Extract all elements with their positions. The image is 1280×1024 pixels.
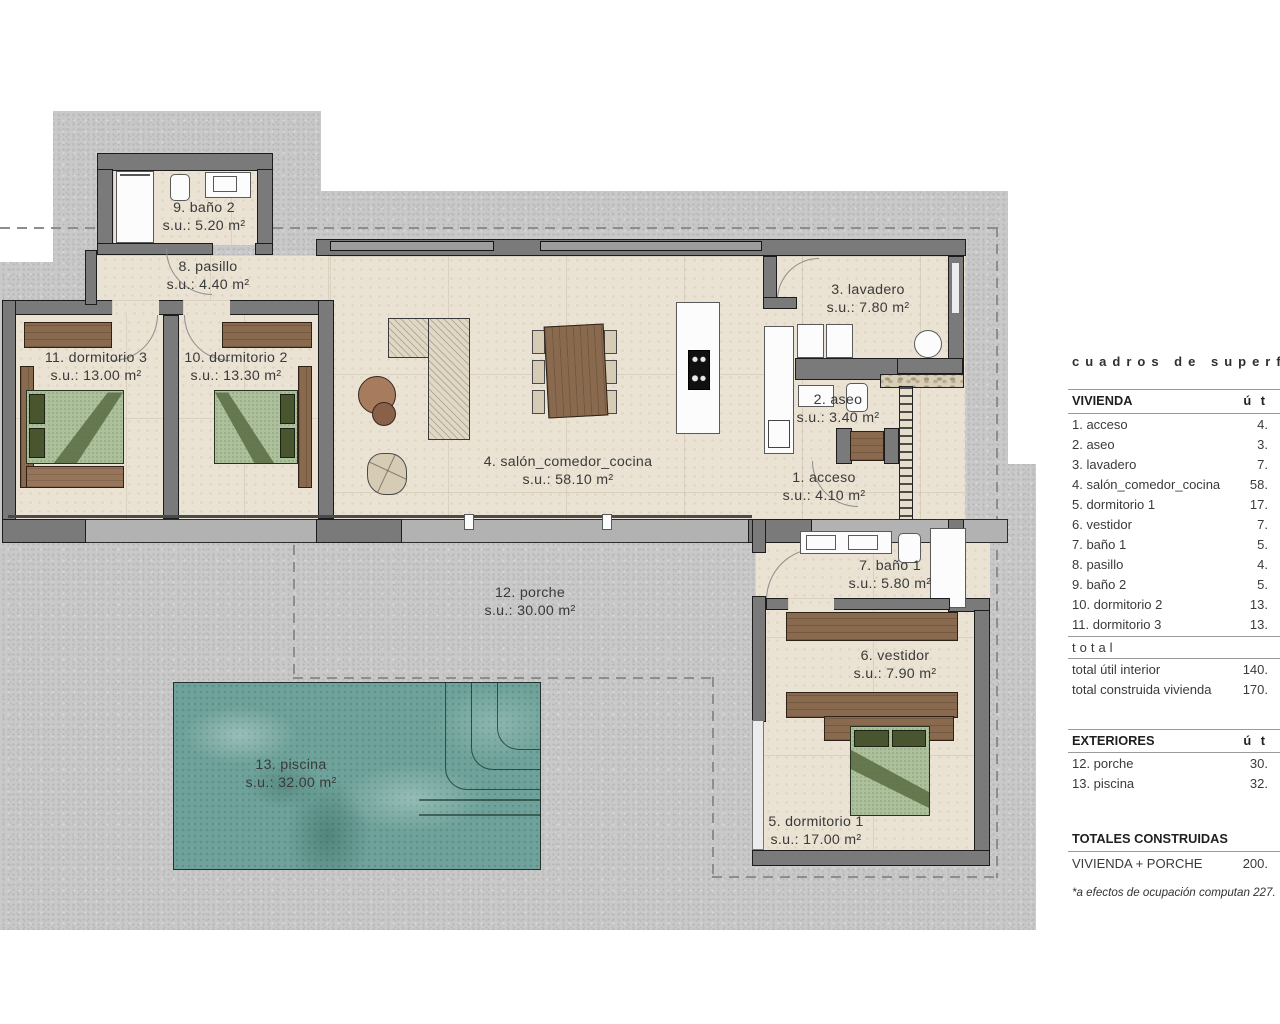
door-opening — [183, 300, 230, 315]
table-row: 10. dormitorio 213. — [1072, 594, 1268, 614]
wall — [163, 315, 179, 519]
table-row: 3. lavadero7. — [1072, 454, 1268, 474]
door-threshold — [464, 514, 474, 530]
room-label-piscina: 13. piscinas.u.: 32.00 m² — [246, 757, 337, 792]
table-row: 4. salón_comedor_cocina58. — [1072, 474, 1268, 494]
column-header: ú t — [1243, 733, 1268, 748]
stone-wall — [880, 374, 964, 388]
room-label-vestidor: 6. vestidors.u.: 7.90 m² — [854, 648, 937, 683]
table-row: total construida vivienda170. — [1072, 679, 1268, 699]
property-line — [273, 227, 997, 229]
shower-head-icon — [120, 174, 150, 176]
toilet — [170, 174, 190, 201]
wall — [752, 519, 766, 553]
row-label: 12. porche — [1072, 756, 1133, 771]
row-value: 5. — [1257, 537, 1268, 552]
bed-bench — [26, 466, 124, 488]
section-title: EXTERIORES — [1072, 733, 1155, 748]
table-title: cuadros de superfi — [1072, 354, 1280, 369]
row-label: 13. piscina — [1072, 776, 1134, 791]
column-header: ú t — [1243, 393, 1268, 408]
row-label: 9. baño 2 — [1072, 577, 1126, 592]
entry-door — [850, 431, 884, 461]
coffee-table — [372, 402, 396, 426]
property-line — [996, 227, 998, 878]
row-label: 11. dormitorio 3 — [1072, 617, 1161, 632]
pillow — [280, 428, 295, 458]
louver-wall — [899, 386, 913, 520]
wardrobe — [786, 692, 958, 718]
row-value: 30. — [1250, 756, 1268, 771]
row-value: 17. — [1250, 497, 1268, 512]
row-label: 3. lavadero — [1072, 457, 1136, 472]
porch-boundary-line — [293, 545, 295, 678]
room-label-bano2: 9. baño 2s.u.: 5.20 m² — [163, 200, 246, 235]
wall — [85, 250, 97, 305]
row-value: 58. — [1250, 477, 1268, 492]
section-title: TOTALES CONSTRUIDAS — [1072, 831, 1228, 846]
wall — [2, 519, 86, 543]
wall — [316, 519, 402, 543]
row-label: 10. dormitorio 2 — [1072, 597, 1162, 612]
wall — [4, 300, 334, 315]
vivienda-rows: 1. acceso4.2. aseo3.3. lavadero7.4. saló… — [1072, 414, 1268, 634]
table-row: 7. baño 15. — [1072, 534, 1268, 554]
room-label-aseo: 2. aseos.u.: 3.40 m² — [797, 392, 880, 427]
row-value: 3. — [1257, 437, 1268, 452]
room-label-pasillo: 8. pasillos.u.: 4.40 m² — [167, 259, 250, 294]
window — [752, 720, 764, 850]
pool-steps — [497, 683, 540, 750]
washing-machine — [797, 324, 824, 358]
kitchen-sink — [768, 420, 790, 448]
room-label-porche: 12. porches.u.: 30.00 m² — [485, 585, 576, 620]
pillow — [29, 394, 45, 424]
wall — [97, 153, 273, 171]
porch-boundary-line — [293, 677, 712, 679]
row-value: 170. — [1243, 682, 1268, 697]
row-label: 6. vestidor — [1072, 517, 1132, 532]
totales-header: TOTALES CONSTRUIDAS — [1072, 831, 1268, 846]
glass-facade — [8, 515, 752, 518]
table-row: 2. aseo3. — [1072, 434, 1268, 454]
window — [540, 241, 762, 251]
row-value: 7. — [1257, 457, 1268, 472]
wardrobe — [24, 322, 112, 348]
table-row: 12. porche30. — [1072, 753, 1268, 773]
room-label-acceso: 1. accesos.u.: 4.10 m² — [783, 470, 866, 505]
wall — [763, 256, 777, 300]
door-threshold — [602, 514, 612, 530]
row-label: total útil interior — [1072, 662, 1160, 677]
row-value: 13. — [1250, 617, 1268, 632]
door-opening — [112, 300, 159, 315]
row-value: 200. — [1243, 856, 1268, 871]
wall — [763, 297, 797, 309]
sink-basin — [806, 535, 836, 550]
pool-step-line — [419, 799, 540, 801]
wall — [884, 428, 899, 464]
table-rule — [1068, 389, 1280, 390]
dining-chair — [532, 360, 545, 384]
table-row: 9. baño 25. — [1072, 574, 1268, 594]
room-label-salon: 4. salón_comedor_cocinas.u.: 58.10 m² — [484, 454, 653, 489]
vivienda-totals: total útil interior140.total construida … — [1072, 659, 1268, 699]
wardrobe — [786, 612, 958, 641]
wall — [974, 610, 990, 866]
row-label: 5. dormitorio 1 — [1072, 497, 1155, 512]
exteriores-rows: 12. porche30.13. piscina32. — [1072, 753, 1268, 793]
row-label: 7. baño 1 — [1072, 537, 1126, 552]
wall — [752, 596, 766, 722]
row-value: 140. — [1243, 662, 1268, 677]
wall — [897, 358, 963, 374]
sink-basin — [848, 535, 878, 550]
row-value: 4. — [1257, 557, 1268, 572]
water-heater — [914, 330, 942, 358]
table-row: 13. piscina32. — [1072, 773, 1268, 793]
porch-boundary-line — [712, 677, 714, 877]
window — [951, 262, 960, 314]
row-label: VIVIENDA + PORCHE — [1072, 856, 1202, 871]
dining-chair — [604, 330, 617, 354]
room-label-dormitorio3: 11. dormitorio 3s.u.: 13.00 m² — [45, 350, 147, 385]
wall — [752, 850, 990, 866]
pillow — [854, 730, 889, 747]
row-value: 7. — [1257, 517, 1268, 532]
property-line — [712, 876, 997, 878]
table-row: 6. vestidor7. — [1072, 514, 1268, 534]
table-row: VIVIENDA + PORCHE200. — [1072, 853, 1268, 873]
sink-basin — [213, 176, 237, 192]
cooktop — [688, 350, 710, 390]
wardrobe — [222, 322, 312, 348]
door-opening — [788, 598, 834, 610]
row-label: 4. salón_comedor_cocina — [1072, 477, 1220, 492]
row-value: 32. — [1250, 776, 1268, 791]
sofa — [428, 318, 470, 440]
row-label: 1. acceso — [1072, 417, 1128, 432]
wall — [2, 300, 16, 525]
room-label-bano1: 7. baño 1s.u.: 5.80 m² — [849, 558, 932, 593]
wall — [318, 300, 334, 519]
total-row-label: total — [1072, 640, 1117, 655]
table-row: 5. dormitorio 117. — [1072, 494, 1268, 514]
floor-plan-sheet: 1. accesos.u.: 4.10 m² 2. aseos.u.: 3.40… — [0, 0, 1280, 1024]
row-value: 4. — [1257, 417, 1268, 432]
section-title: VIVIENDA — [1072, 393, 1132, 408]
totales-rows: VIVIENDA + PORCHE200. — [1072, 853, 1268, 873]
row-label: 8. pasillo — [1072, 557, 1123, 572]
table-rule — [1068, 851, 1280, 852]
row-label: 2. aseo — [1072, 437, 1115, 452]
table-rule — [1068, 729, 1280, 730]
table-row: 11. dormitorio 313. — [1072, 614, 1268, 634]
room-label-lavadero: 3. lavaderos.u.: 7.80 m² — [827, 282, 910, 317]
pool — [173, 682, 541, 870]
row-value: 13. — [1250, 597, 1268, 612]
dining-table — [544, 323, 609, 418]
pool-step-line — [419, 814, 540, 816]
vivienda-header: VIVIENDA ú t — [1072, 393, 1268, 408]
window — [330, 241, 494, 251]
table-row: 8. pasillo4. — [1072, 554, 1268, 574]
shower — [930, 528, 966, 608]
dining-chair — [532, 390, 545, 414]
table-row: total útil interior140. — [1072, 659, 1268, 679]
pouf — [367, 453, 407, 495]
exteriores-header: EXTERIORES ú t — [1072, 733, 1268, 748]
property-line — [0, 227, 98, 229]
shower — [116, 171, 154, 243]
table-footnote: *a efectos de ocupación computan 227. — [1072, 886, 1276, 899]
room-label-dormitorio2: 10. dormitorio 2s.u.: 13.30 m² — [184, 350, 287, 385]
row-value: 5. — [1257, 577, 1268, 592]
wall — [255, 243, 273, 255]
pillow — [280, 394, 295, 424]
pillow — [29, 428, 45, 458]
table-row: 1. acceso4. — [1072, 414, 1268, 434]
pillow — [892, 730, 926, 747]
room-label-dormitorio1: 5. dormitorio 1s.u.: 17.00 m² — [768, 814, 863, 849]
washing-machine — [826, 324, 853, 358]
wardrobe — [298, 366, 312, 488]
table-rule — [1068, 636, 1280, 637]
row-label: total construida vivienda — [1072, 682, 1211, 697]
